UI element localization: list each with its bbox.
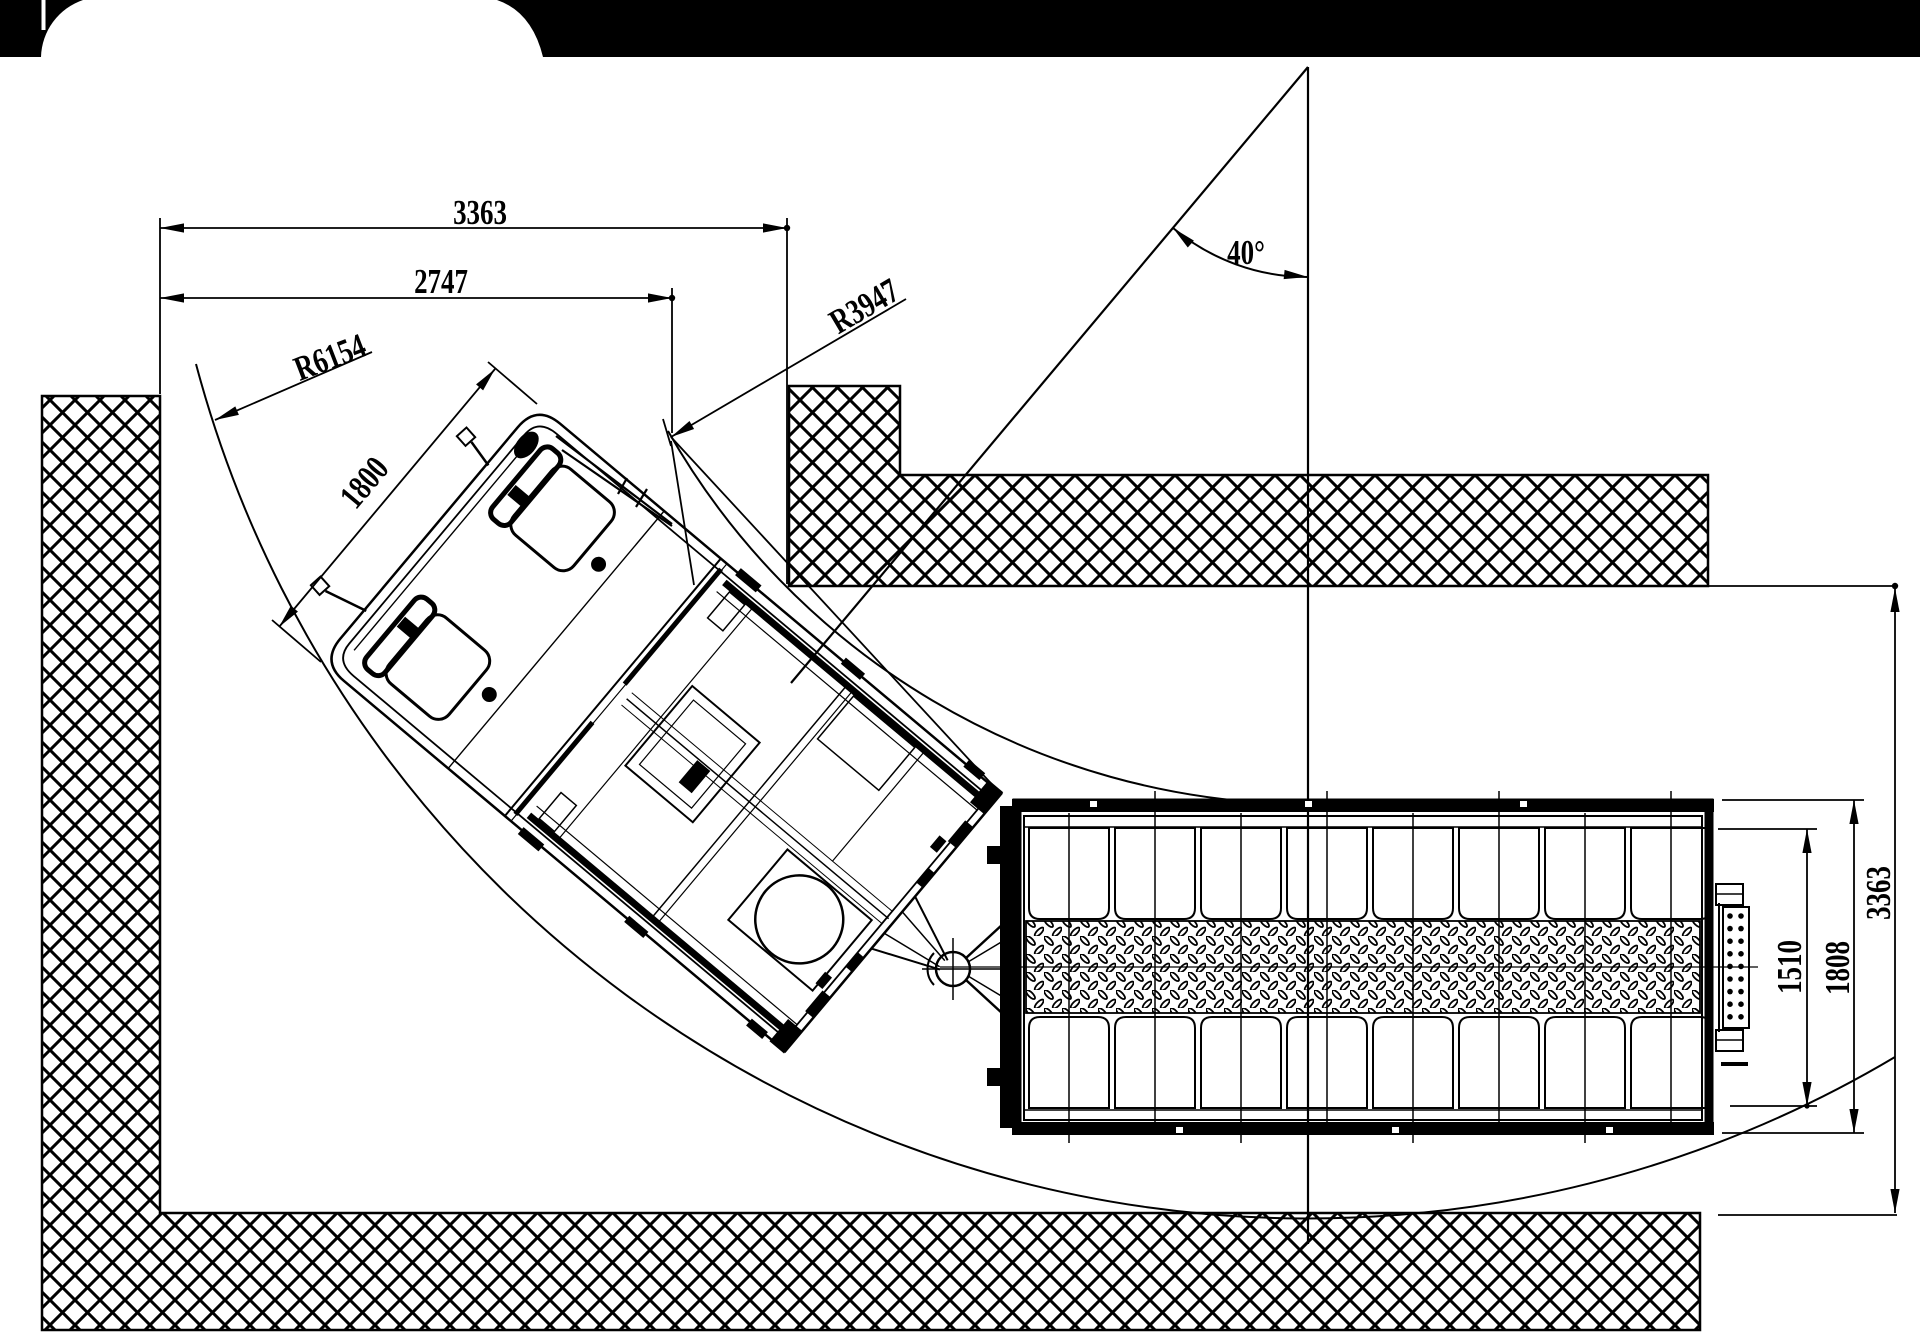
svg-text:40°: 40° (1227, 233, 1265, 272)
svg-text:2747: 2747 (414, 262, 468, 301)
svg-text:1808: 1808 (1818, 941, 1857, 995)
svg-text:3363: 3363 (453, 193, 507, 232)
svg-text:3363: 3363 (1859, 866, 1898, 920)
svg-text:1510: 1510 (1770, 940, 1809, 994)
